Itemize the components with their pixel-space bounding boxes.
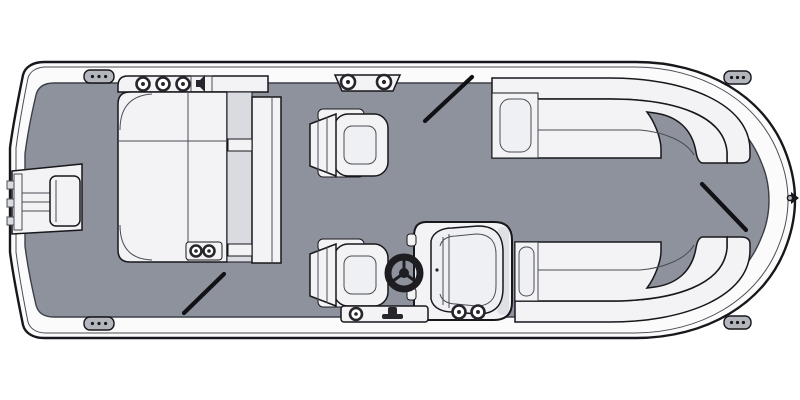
stern-lounge <box>118 92 281 263</box>
step-light <box>350 308 362 320</box>
cleat-icon <box>388 307 397 315</box>
ski-tow-plate <box>335 75 400 91</box>
boarding-step <box>341 306 428 322</box>
chair-backrest <box>310 244 336 306</box>
outboard-motor-pod <box>50 176 80 226</box>
lounge-base-strip <box>227 92 252 262</box>
speaker-knobs <box>137 78 190 91</box>
lounge-backrest-panel <box>252 97 281 263</box>
captain-chair-helm <box>310 239 388 307</box>
console-windscreen <box>431 226 503 314</box>
console-knob <box>407 234 416 246</box>
pontoon-floorplan <box>0 0 800 400</box>
stern-motor-well <box>7 164 82 234</box>
chair-backrest <box>310 114 336 176</box>
captain-chair-aft <box>310 109 388 177</box>
hinge-bracket <box>228 139 252 151</box>
stern-accessory-strip <box>118 75 268 92</box>
floorplan-stage <box>0 0 800 400</box>
hinge-bracket <box>228 244 252 256</box>
